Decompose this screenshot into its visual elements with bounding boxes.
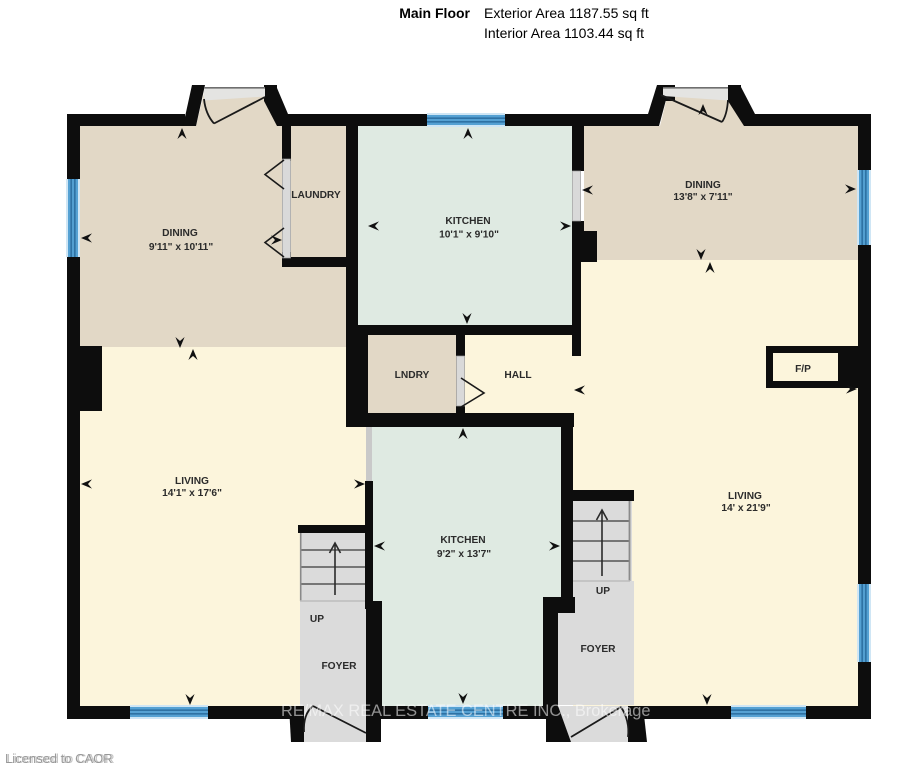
svg-text:LIVING: LIVING — [728, 491, 762, 502]
svg-text:KITCHEN: KITCHEN — [440, 535, 485, 546]
svg-text:DINING: DINING — [162, 228, 198, 239]
svg-text:KITCHEN: KITCHEN — [445, 216, 490, 227]
svg-text:14'1" x 17'6": 14'1" x 17'6" — [162, 488, 222, 499]
svg-text:Exterior Area 1187.55 sq ft: Exterior Area 1187.55 sq ft — [484, 5, 649, 21]
svg-text:LAUNDRY: LAUNDRY — [291, 190, 341, 201]
svg-text:FOYER: FOYER — [321, 661, 357, 672]
svg-text:9'2" x 13'7": 9'2" x 13'7" — [437, 549, 491, 560]
svg-text:FOYER: FOYER — [580, 644, 616, 655]
svg-text:UP: UP — [596, 586, 610, 597]
svg-text:UP: UP — [310, 614, 324, 625]
svg-text:DINING: DINING — [685, 180, 721, 191]
svg-text:10'1" x 9'10": 10'1" x 9'10" — [439, 230, 499, 241]
svg-text:Main Floor: Main Floor — [399, 5, 470, 21]
svg-text:LNDRY: LNDRY — [395, 370, 430, 381]
svg-text:Licensed to CAOR: Licensed to CAOR — [7, 751, 115, 766]
svg-text:HALL: HALL — [504, 370, 531, 381]
svg-text:Interior Area 1103.44 sq ft: Interior Area 1103.44 sq ft — [484, 25, 644, 41]
svg-text:9'11" x 10'11": 9'11" x 10'11" — [149, 242, 214, 253]
svg-text:LIVING: LIVING — [175, 476, 209, 487]
svg-text:13'8" x 7'11": 13'8" x 7'11" — [673, 192, 732, 203]
svg-text:RE/MAX REAL ESTATE CENTRE INC.: RE/MAX REAL ESTATE CENTRE INC., Brokerag… — [281, 702, 650, 720]
svg-text:14' x 21'9": 14' x 21'9" — [721, 503, 771, 514]
svg-text:F/P: F/P — [795, 364, 811, 375]
